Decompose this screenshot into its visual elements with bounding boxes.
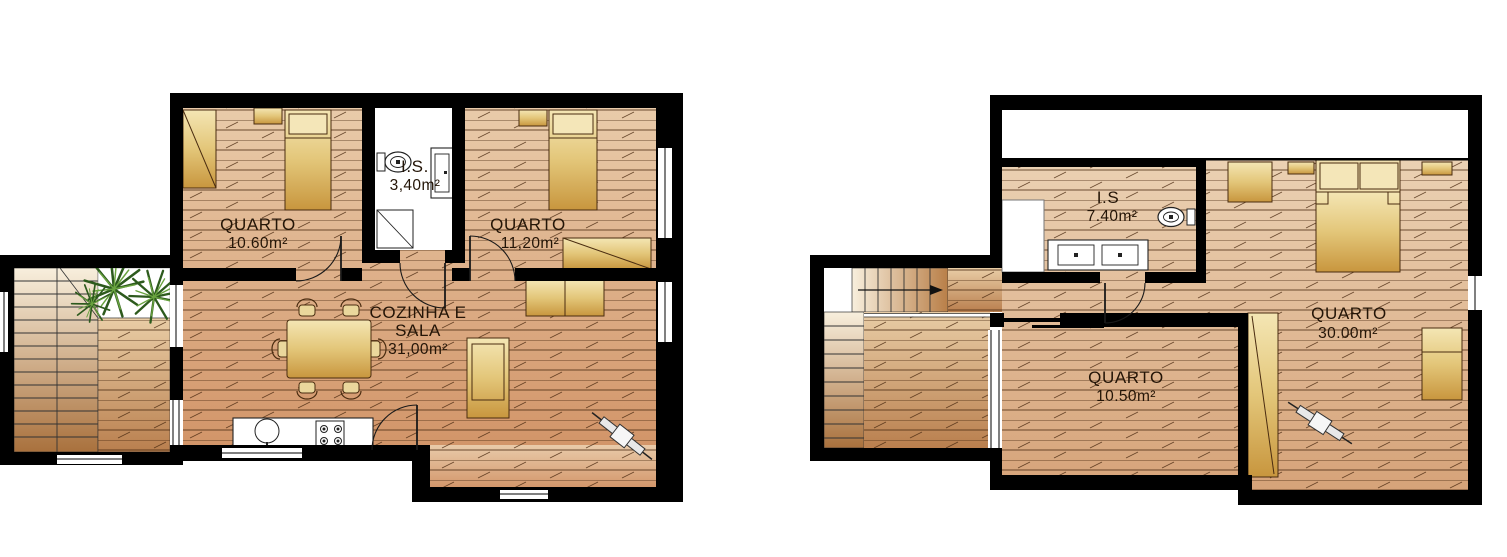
bench (1422, 328, 1462, 400)
floor-plan-sheet: QUARTO 10.60m² I.S. 3,40m² QUARTO 11,20m… (0, 0, 1507, 557)
nightstand (1288, 162, 1314, 174)
sofa (526, 280, 604, 316)
nightstand (254, 108, 282, 124)
room-area-sala: 31,00m² (388, 341, 448, 358)
plan-ground-floor: QUARTO 10.60m² I.S. 3,40m² QUARTO 11,20m… (0, 93, 683, 502)
room-label-quarto-1: QUARTO (220, 215, 296, 234)
toilet-icon (1158, 208, 1195, 227)
room-label-is-1: I.S. (401, 157, 429, 176)
sliding-door (988, 330, 1002, 448)
floor-plan-drawing: QUARTO 10.60m² I.S. 3,40m² QUARTO 11,20m… (0, 0, 1507, 557)
single-bed (549, 110, 597, 210)
shower-icon (377, 210, 413, 248)
window (658, 282, 672, 342)
room-label-quarto-2: QUARTO (490, 215, 566, 234)
room-area-quarto-4: 10.50m² (1096, 388, 1156, 405)
window (222, 448, 302, 458)
double-bed (1316, 160, 1400, 272)
stove-icon (316, 421, 344, 448)
shower-closet (1002, 200, 1044, 272)
plan-upper-floor: I.S 7.40m² QUARTO 30.00m² QUARTO 10.50m² (810, 95, 1482, 505)
wardrobe (1248, 313, 1278, 477)
stairs (14, 268, 98, 452)
window (57, 455, 122, 464)
nightstand (519, 110, 547, 126)
wardrobe (1228, 162, 1272, 202)
room-area-is-1: 3,40m² (390, 177, 441, 194)
window (1468, 276, 1482, 310)
room-area-is-2: 7.40m² (1087, 208, 1138, 225)
room-label-is-2: I.S (1097, 188, 1120, 207)
room-label-quarto-3: QUARTO (1311, 304, 1387, 323)
window (0, 292, 8, 352)
wardrobe (563, 238, 651, 269)
wardrobe (183, 110, 216, 188)
window (500, 490, 548, 499)
void-area (1002, 110, 1468, 158)
room-label-quarto-4: QUARTO (1088, 368, 1164, 387)
room-area-quarto-1: 10.60m² (228, 235, 288, 252)
armchair (467, 338, 509, 418)
room-area-quarto-2: 11,20m² (501, 235, 560, 252)
nightstand (1422, 162, 1452, 175)
window (658, 148, 672, 238)
room-label-sala-line2: SALA (395, 321, 441, 340)
room-area-quarto-3: 30.00m² (1318, 325, 1378, 342)
sliding-door (170, 400, 183, 445)
window (170, 285, 183, 347)
room-label-sala-line1: COZINHA E (369, 303, 466, 322)
single-bed (285, 110, 331, 210)
double-vanity-icon (1048, 240, 1148, 270)
deck-floor (98, 318, 170, 452)
